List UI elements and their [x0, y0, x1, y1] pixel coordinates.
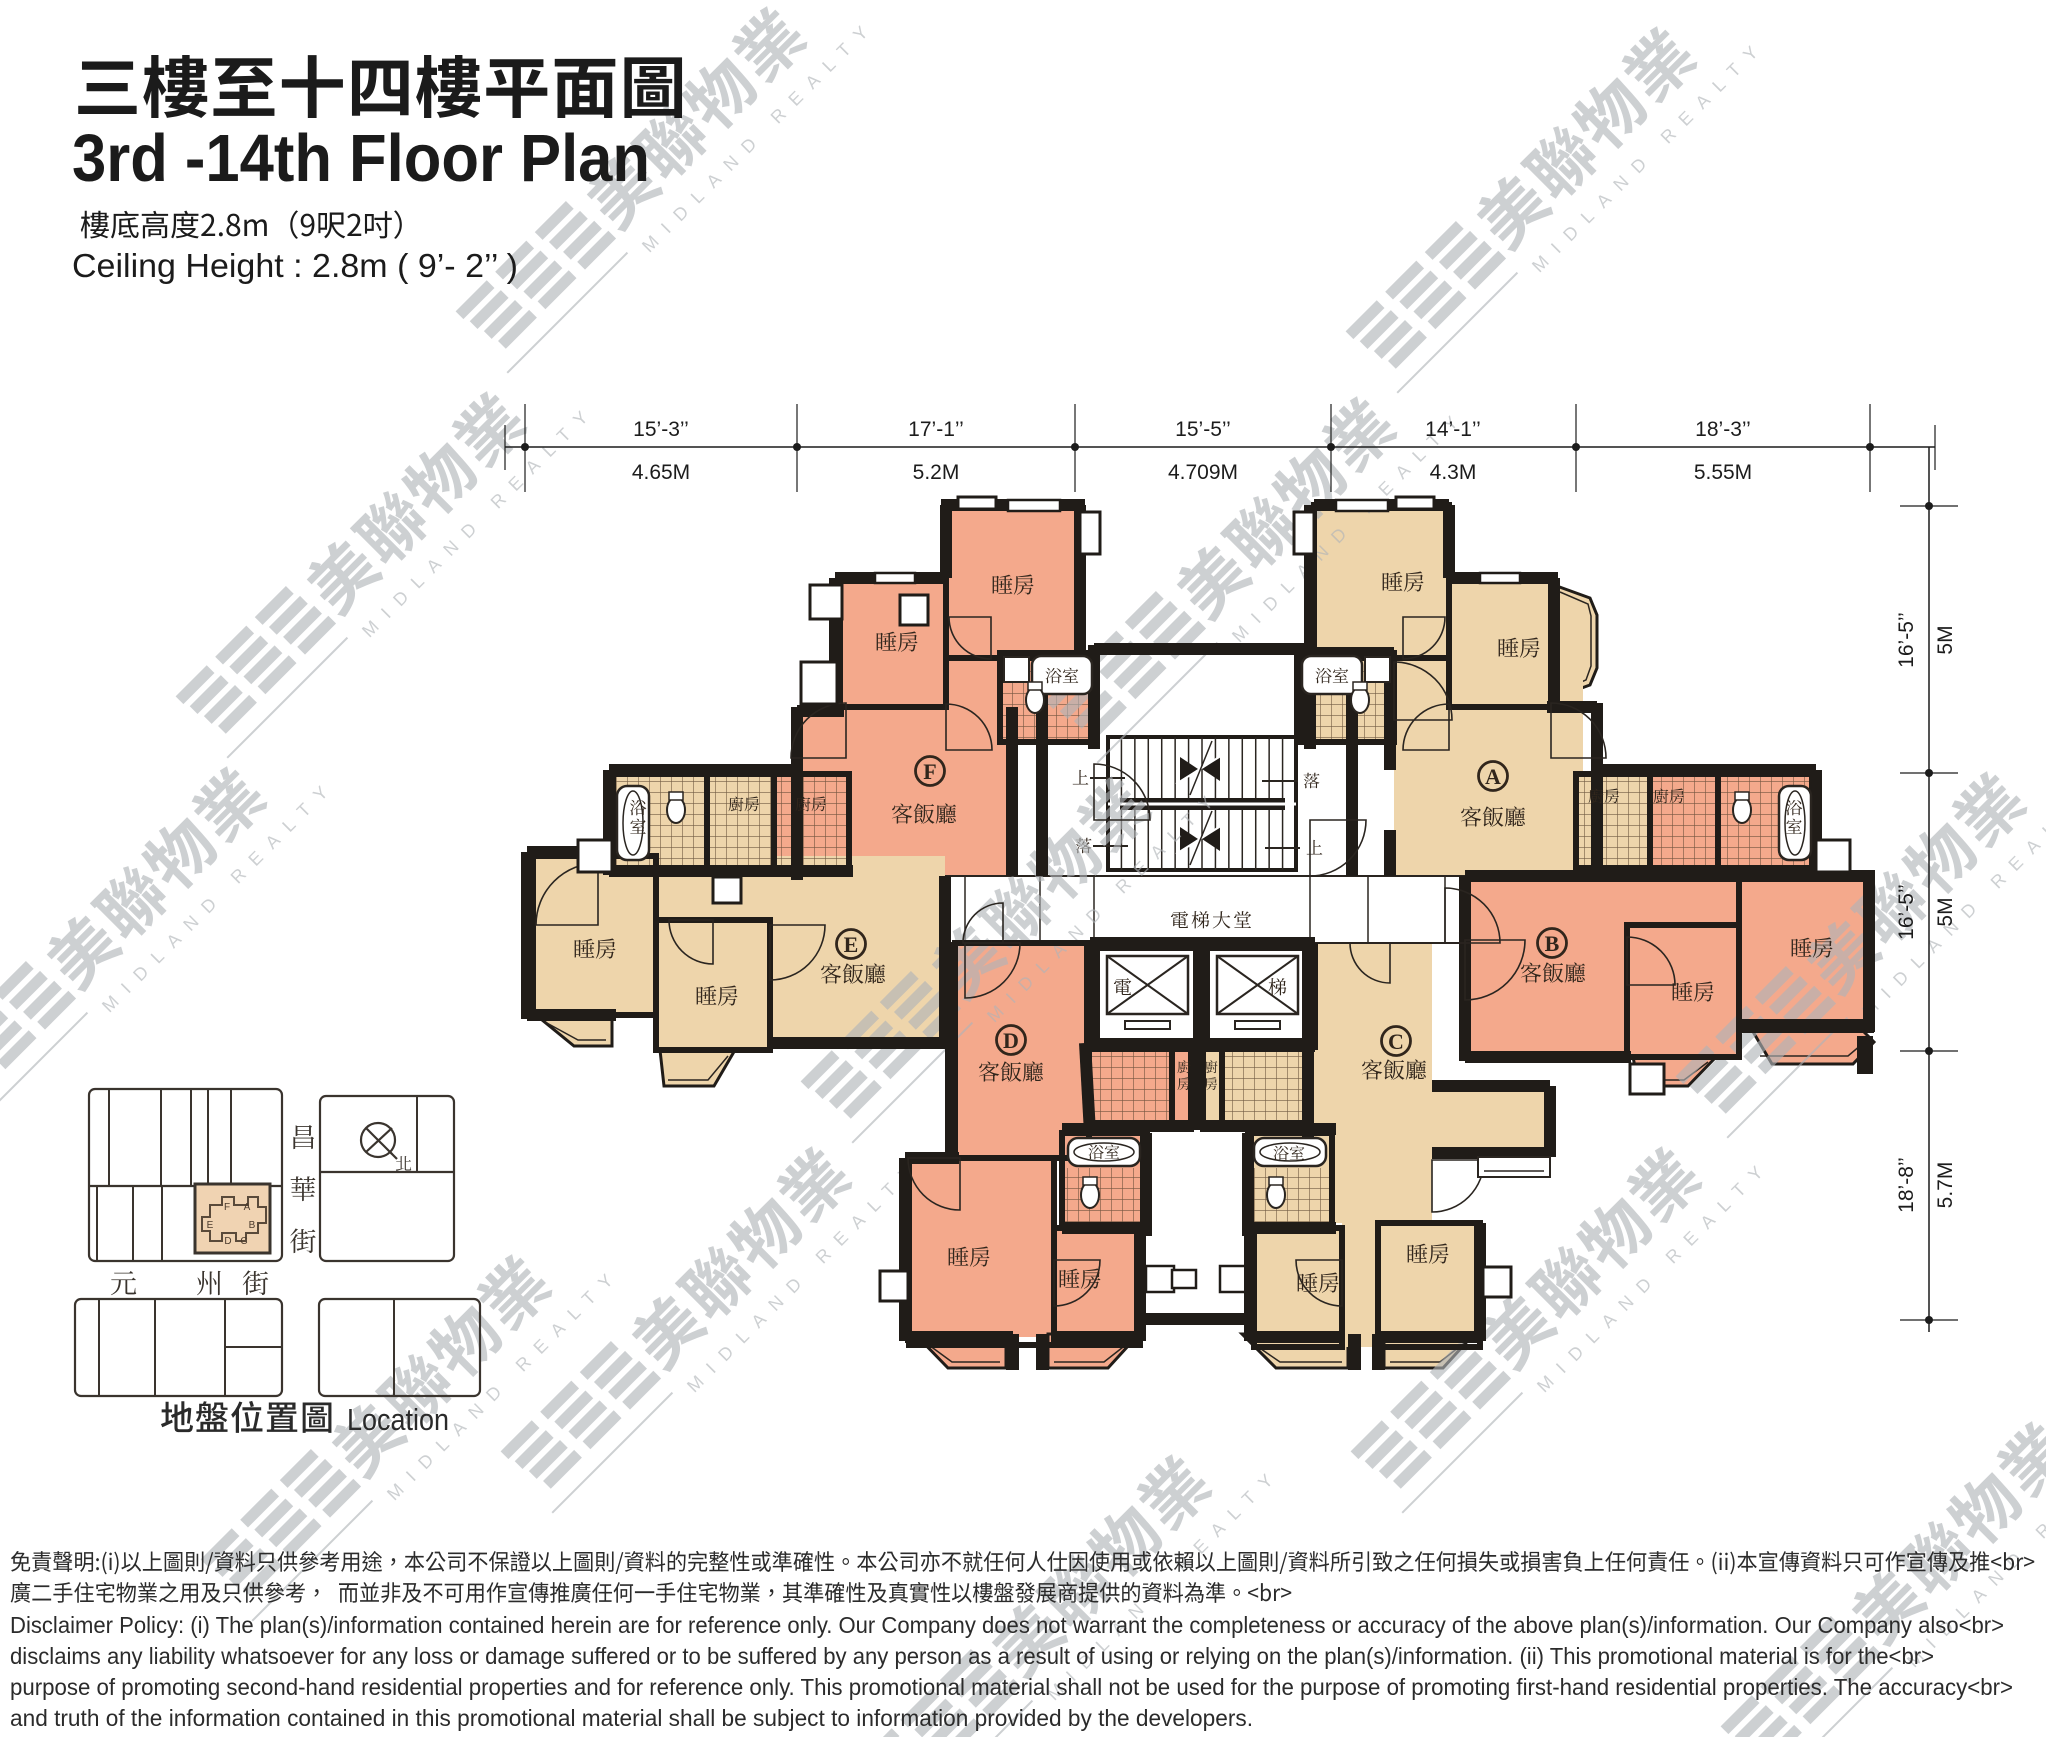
svg-text:5.7M: 5.7M: [1934, 1162, 1957, 1209]
svg-text:5M: 5M: [1934, 625, 1957, 654]
svg-text:Disclaimer Policy: (i) The pla: Disclaimer Policy: (i) The plan(s)/infor…: [10, 1612, 2004, 1638]
svg-text:18’-8’’: 18’-8’’: [1895, 1157, 1918, 1213]
svg-text:A: A: [244, 1202, 251, 1213]
svg-text:5.55M: 5.55M: [1694, 461, 1752, 484]
svg-text:4.65M: 4.65M: [632, 461, 690, 484]
svg-text:F: F: [923, 759, 936, 784]
svg-text:5.2M: 5.2M: [913, 461, 960, 484]
svg-text:E: E: [844, 932, 859, 957]
svg-text:A: A: [1485, 764, 1501, 789]
svg-text:17’-1’’: 17’-1’’: [908, 418, 964, 441]
svg-text:Ceiling Height : 2.8m ( 9’- 2’: Ceiling Height : 2.8m ( 9’- 2’’ ): [72, 247, 518, 284]
svg-text:E: E: [207, 1220, 214, 1231]
svg-text:15’-3’’: 15’-3’’: [633, 418, 689, 441]
svg-text:16’-5’’: 16’-5’’: [1895, 612, 1918, 668]
svg-text:disclaims any liability whatso: disclaims any liability whatsoever for a…: [10, 1643, 1934, 1669]
svg-text:16’-5’’: 16’-5’’: [1895, 884, 1918, 940]
svg-text:4.709M: 4.709M: [1168, 461, 1238, 484]
svg-text:3rd -14th Floor Plan: 3rd -14th Floor Plan: [72, 121, 650, 196]
svg-text:C: C: [240, 1236, 247, 1247]
svg-text:B: B: [249, 1220, 256, 1231]
svg-text:D: D: [224, 1236, 231, 1247]
svg-text:4.3M: 4.3M: [1430, 461, 1477, 484]
svg-text:B: B: [1545, 931, 1560, 956]
svg-text:14’-1’’: 14’-1’’: [1425, 418, 1481, 441]
svg-text:D: D: [1003, 1028, 1019, 1053]
svg-text:15’-5’’: 15’-5’’: [1175, 418, 1231, 441]
svg-text:5M: 5M: [1934, 897, 1957, 926]
svg-text:and truth of the information c: and truth of the information contained i…: [10, 1705, 1253, 1731]
svg-text:18’-3’’: 18’-3’’: [1695, 418, 1751, 441]
svg-text:purpose of promoting second-ha: purpose of promoting second-hand residen…: [10, 1674, 2013, 1700]
svg-text:Location: Location: [347, 1402, 449, 1437]
svg-text:F: F: [224, 1202, 230, 1213]
svg-text:C: C: [1388, 1029, 1404, 1054]
